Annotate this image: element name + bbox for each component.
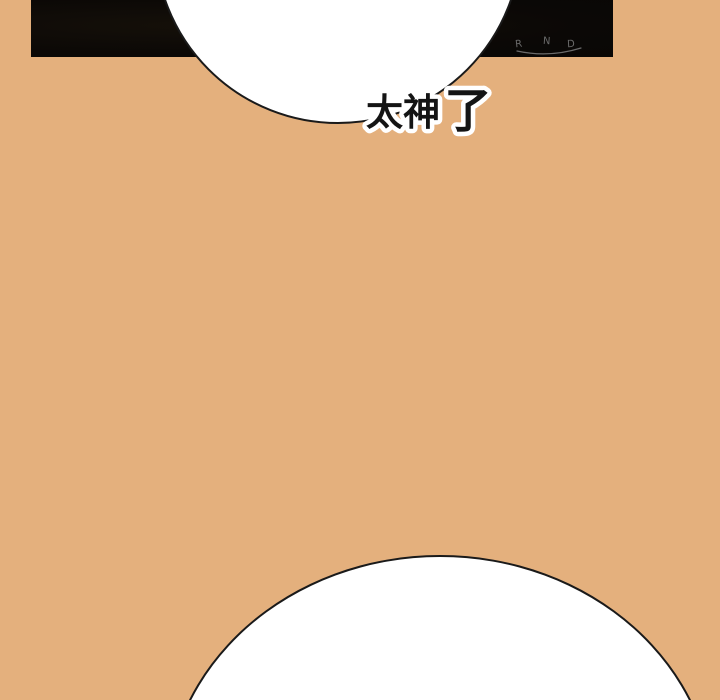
signature-letter-d: D [567,39,576,50]
speech-bubble-bottom [165,555,715,700]
caption-text-line: 太神 了 [366,84,491,137]
signature-letter-n: N [543,36,551,47]
artist-signature: R N D [503,30,593,58]
comic-page: R N D 太神 了 [0,0,720,700]
caption-part1: 太神 [366,92,440,133]
caption-text: 太神 了 [330,55,530,140]
signature-letter-r: R [515,39,523,51]
caption-part2: 了 [444,84,491,137]
